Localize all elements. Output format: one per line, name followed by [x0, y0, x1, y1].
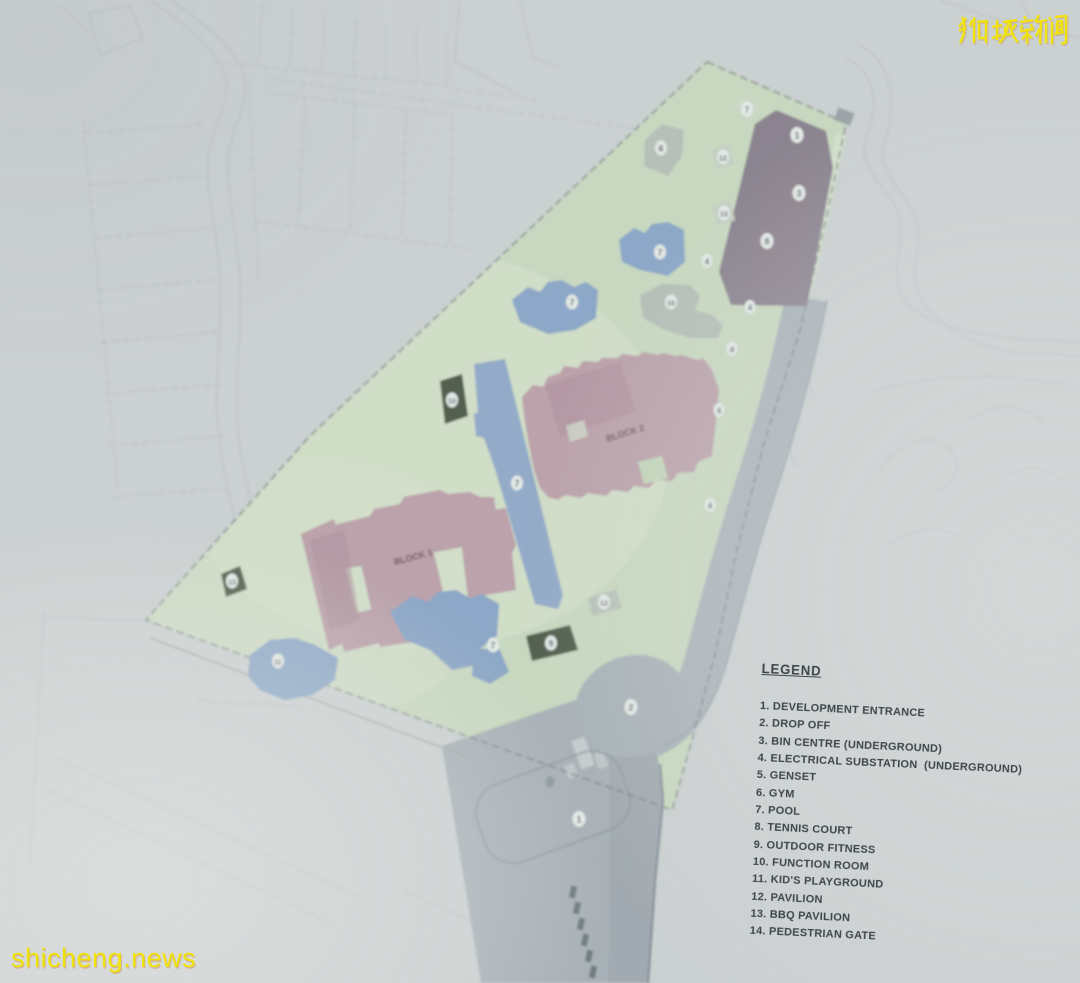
- svg-text:7: 7: [569, 298, 574, 308]
- svg-text:7: 7: [514, 479, 519, 489]
- svg-text:7: 7: [745, 106, 750, 115]
- svg-text:12: 12: [719, 156, 727, 163]
- svg-text:10: 10: [448, 399, 456, 406]
- svg-text:6: 6: [658, 144, 663, 154]
